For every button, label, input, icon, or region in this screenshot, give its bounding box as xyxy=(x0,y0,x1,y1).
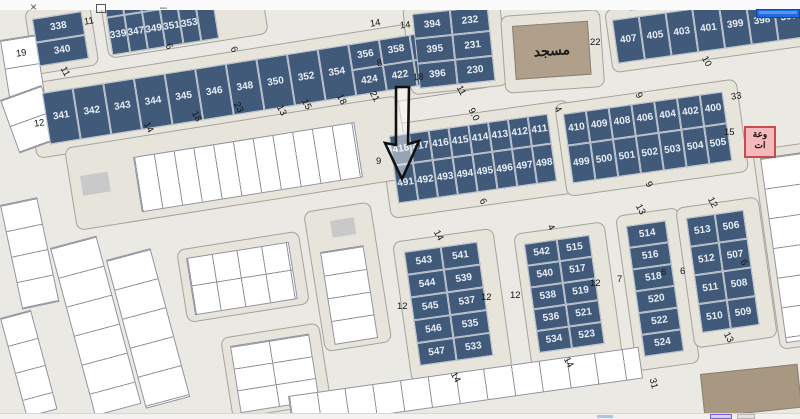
plot-block-543: 543541544539545537546535547533 xyxy=(404,242,493,366)
plot[interactable]: 513 xyxy=(686,214,719,247)
unlabeled-parcels xyxy=(0,310,58,418)
dimension-label: 19 xyxy=(15,47,27,60)
dimension-label: 18 xyxy=(412,71,424,83)
mosque-building[interactable]: مسجد xyxy=(512,21,592,80)
plot[interactable]: 230 xyxy=(455,56,495,85)
taskbar-tick xyxy=(597,415,613,418)
dimension-label: 6 xyxy=(661,267,666,278)
dimension-label: 33 xyxy=(730,90,742,102)
plot[interactable]: 523 xyxy=(569,322,605,348)
plot[interactable]: 507 xyxy=(719,239,752,272)
dimension-label: 14 xyxy=(399,19,411,31)
location-arrow xyxy=(375,84,435,189)
plot[interactable]: 511 xyxy=(694,271,727,304)
dimension-label: 6 xyxy=(680,266,685,277)
plot-block-338: 338340 xyxy=(32,11,89,66)
stamp-line2: ات xyxy=(748,140,772,151)
minimize-icon[interactable]: – xyxy=(160,1,167,13)
map-annotation-stamp: وعة ات xyxy=(744,126,776,158)
dimension-label: 12 xyxy=(33,117,45,130)
dimension-label: 12 xyxy=(590,278,601,289)
dimension-label: 15 xyxy=(724,127,735,138)
window-titlebar xyxy=(0,0,800,10)
dimension-label: 12 xyxy=(481,292,492,303)
plot[interactable]: 510 xyxy=(698,300,731,333)
stamp-line1: وعة xyxy=(748,129,772,140)
restore-icon[interactable] xyxy=(96,4,106,13)
plot[interactable]: 508 xyxy=(723,267,756,300)
dimension-label: 22 xyxy=(590,37,601,48)
plot[interactable]: 512 xyxy=(690,243,723,276)
dimension-label: 12 xyxy=(397,301,408,312)
plot[interactable]: 506 xyxy=(715,210,748,243)
dimension-label: 11 xyxy=(83,15,94,27)
plot[interactable]: 411 xyxy=(528,114,552,146)
dimension-label: 31 xyxy=(647,377,660,390)
dimension-label: 12 xyxy=(510,290,521,301)
dimension-label: 7 xyxy=(617,274,622,285)
service-building xyxy=(700,364,800,418)
taskbar-item[interactable] xyxy=(737,414,755,419)
map-canvas[interactable]: 338340 336339347349351353 34134234334434… xyxy=(0,0,800,419)
plot[interactable]: 400 xyxy=(700,92,727,127)
close-icon[interactable]: × xyxy=(30,1,37,13)
dimension-label: 14 xyxy=(369,17,381,30)
taskbar-item-highlighted[interactable] xyxy=(710,414,732,419)
plot-block-394: 394232395231396230 xyxy=(412,6,495,89)
plot[interactable]: 534 xyxy=(536,327,572,353)
plot[interactable]: 509 xyxy=(727,296,760,329)
mosque-label: مسجد xyxy=(533,41,570,60)
scroll-indicator[interactable] xyxy=(756,9,800,18)
window-bottom-edge xyxy=(0,413,800,419)
